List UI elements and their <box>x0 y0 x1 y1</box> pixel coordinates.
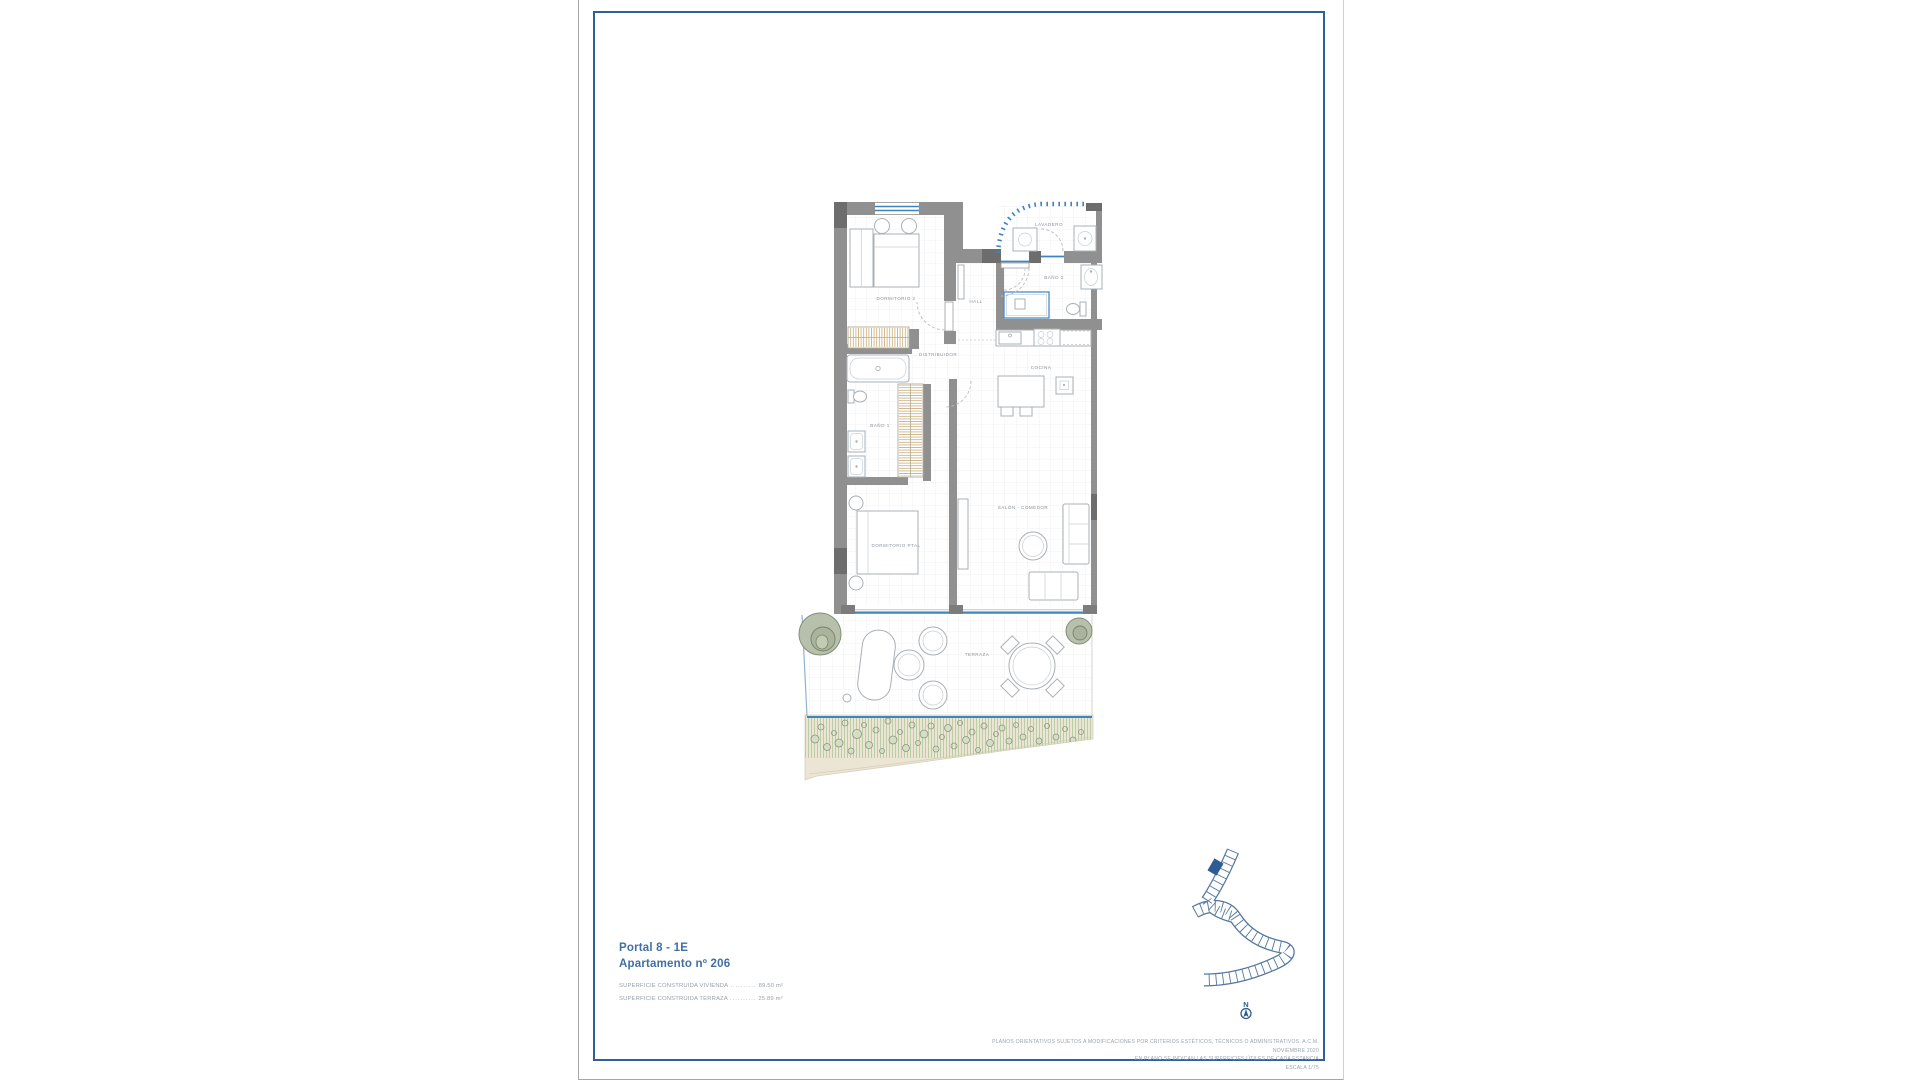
bedroom2-furniture <box>850 219 919 288</box>
surface-area-row-terraza: SUPERFICIE CONSTRUIDA TERRAZA ..........… <box>619 993 791 1006</box>
surface-areas: SUPERFICIE CONSTRUIDA VIVIENDA .........… <box>619 980 791 1006</box>
site-key-map <box>1195 851 1288 980</box>
title-block: Portal 8 - 1E Apartamento nº 206 <box>619 941 730 972</box>
compass-needle-icon <box>1243 1009 1248 1017</box>
floor-plan-svg: LAVADERO BAÑO 2 HALL DORMITORIO 2 DISTRI… <box>579 0 1343 1079</box>
disclaimer-block: PLANOS ORIENTATIVOS SUJETOS A MODIFICACI… <box>979 1038 1319 1072</box>
room-label-dormitorio-ptal: DORMITORIO PTAL <box>872 543 921 548</box>
disclaimer-line1: PLANOS ORIENTATIVOS SUJETOS A MODIFICACI… <box>979 1038 1319 1055</box>
portal-title: Portal 8 - 1E <box>619 941 730 957</box>
room-label-bano2: BAÑO 2 <box>1044 274 1064 280</box>
surface-terraza-value: 25.89 m² <box>758 993 782 1006</box>
apartment-title: Apartamento nº 206 <box>619 957 730 973</box>
terrace-plant-left <box>799 613 841 655</box>
surface-area-row-vivienda: SUPERFICIE CONSTRUIDA VIVIENDA .........… <box>619 980 791 993</box>
room-label-dormitorio2: DORMITORIO 2 <box>876 296 915 301</box>
room-label-hall: HALL <box>969 299 982 304</box>
surface-vivienda-label: SUPERFICIE CONSTRUIDA VIVIENDA <box>619 980 728 993</box>
highlighted-unit <box>1212 861 1219 873</box>
leader-dots: .......... <box>728 980 758 993</box>
disclaimer-line2: EN PLANO SE INDICAN LAS SUPERFICIES ÚTIL… <box>979 1055 1319 1064</box>
room-label-terraza: TERRAZA <box>965 652 990 657</box>
scale-note: ESCALA 1/75 <box>979 1064 1319 1073</box>
pdf-page: LAVADERO BAÑO 2 HALL DORMITORIO 2 DISTRI… <box>578 0 1344 1080</box>
leader-dots: .......... <box>728 993 758 1006</box>
north-label: N <box>1243 1000 1248 1009</box>
room-label-lavadero: LAVADERO <box>1035 222 1063 227</box>
surface-vivienda-value: 89.50 m² <box>759 980 783 993</box>
room-label-salon-comedor: SALÓN - COMEDOR <box>998 504 1049 510</box>
room-label-cocina: COCINA <box>1031 365 1052 370</box>
terrace-dining-set <box>1001 636 1064 697</box>
room-label-distribuidor: DISTRIBUIDOR <box>919 352 958 357</box>
room-label-bano1: BAÑO 1 <box>870 422 890 428</box>
north-compass: N <box>1241 1000 1251 1019</box>
surface-terraza-label: SUPERFICIE CONSTRUIDA TERRAZA <box>619 993 728 1006</box>
facade-glass-wall <box>841 605 1097 614</box>
terrace-plant-right <box>1066 618 1092 644</box>
garden-band <box>805 715 1093 780</box>
